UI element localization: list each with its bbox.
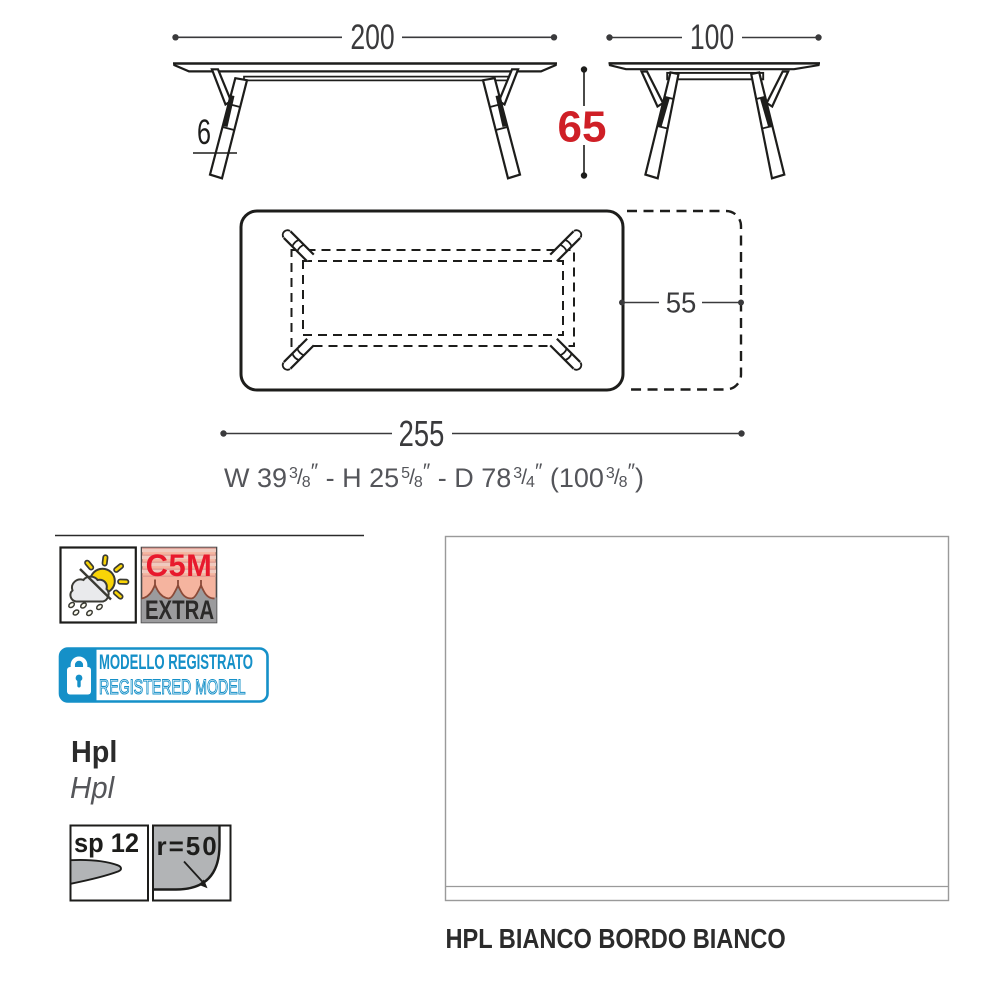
- svg-text:55: 55: [666, 286, 697, 319]
- svg-text:EXTRA: EXTRA: [145, 597, 214, 626]
- svg-text:6: 6: [197, 113, 211, 152]
- svg-text:255: 255: [399, 413, 445, 454]
- svg-text:sp 12: sp 12: [74, 828, 139, 859]
- svg-text:65: 65: [558, 103, 607, 152]
- svg-text:Hpl: Hpl: [71, 735, 117, 769]
- svg-text:Hpl: Hpl: [70, 771, 115, 805]
- svg-text:r=50: r=50: [157, 831, 219, 861]
- svg-text:W 393/8″ - H 255/8″ - D 783/4″: W 393/8″ - H 255/8″ - D 783/4″ (1003/8″): [224, 460, 644, 493]
- svg-text:MODELLO REGISTRATO: MODELLO REGISTRATO: [99, 650, 253, 674]
- svg-text:200: 200: [350, 17, 394, 56]
- svg-text:100: 100: [690, 17, 734, 56]
- svg-text:C5M: C5M: [146, 548, 213, 583]
- svg-text:HPL BIANCO BORDO BIANCO: HPL BIANCO BORDO BIANCO: [446, 924, 786, 954]
- svg-text:REGISTERED MODEL: REGISTERED MODEL: [99, 675, 246, 699]
